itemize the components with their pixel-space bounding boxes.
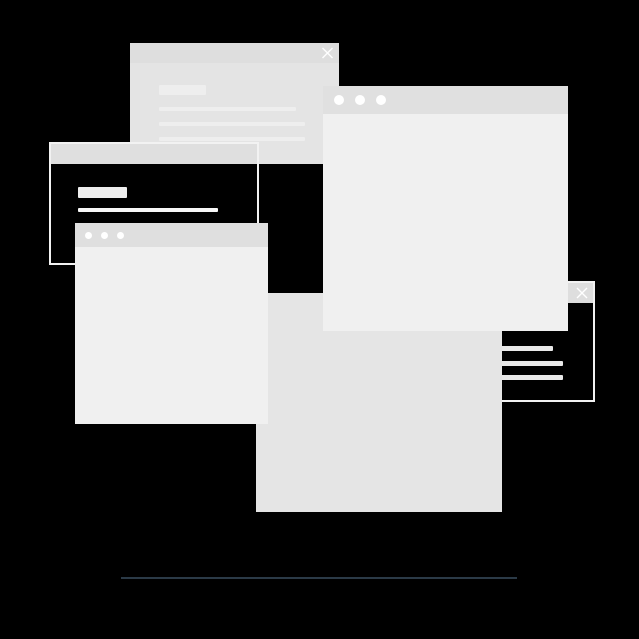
text-line-placeholder [498, 361, 563, 366]
big-right-window-titlebar [323, 86, 568, 114]
close-icon[interactable] [574, 285, 590, 301]
label-placeholder [159, 85, 206, 95]
text-line-placeholder [159, 107, 296, 111]
window-dot-icon[interactable] [85, 232, 92, 239]
left-outlined-window-titlebar [51, 144, 257, 164]
text-line-placeholder [498, 375, 563, 380]
text-line-placeholder [498, 346, 553, 351]
big-right-window [323, 86, 568, 331]
window-dot-icon[interactable] [117, 232, 124, 239]
text-line-placeholder [78, 208, 218, 212]
top-left-window-titlebar [130, 43, 339, 63]
window-dot-icon[interactable] [101, 232, 108, 239]
text-line-placeholder [159, 122, 305, 126]
window-dot-icon[interactable] [355, 95, 365, 105]
illustration-stage [0, 0, 639, 639]
left-dots-window [75, 223, 268, 424]
text-line-placeholder [159, 137, 305, 141]
close-icon[interactable] [320, 46, 335, 61]
left-dots-window-titlebar [75, 223, 268, 247]
bottom-divider-line [121, 577, 517, 579]
window-dot-icon[interactable] [334, 95, 344, 105]
label-placeholder [78, 187, 127, 198]
window-dot-icon[interactable] [376, 95, 386, 105]
